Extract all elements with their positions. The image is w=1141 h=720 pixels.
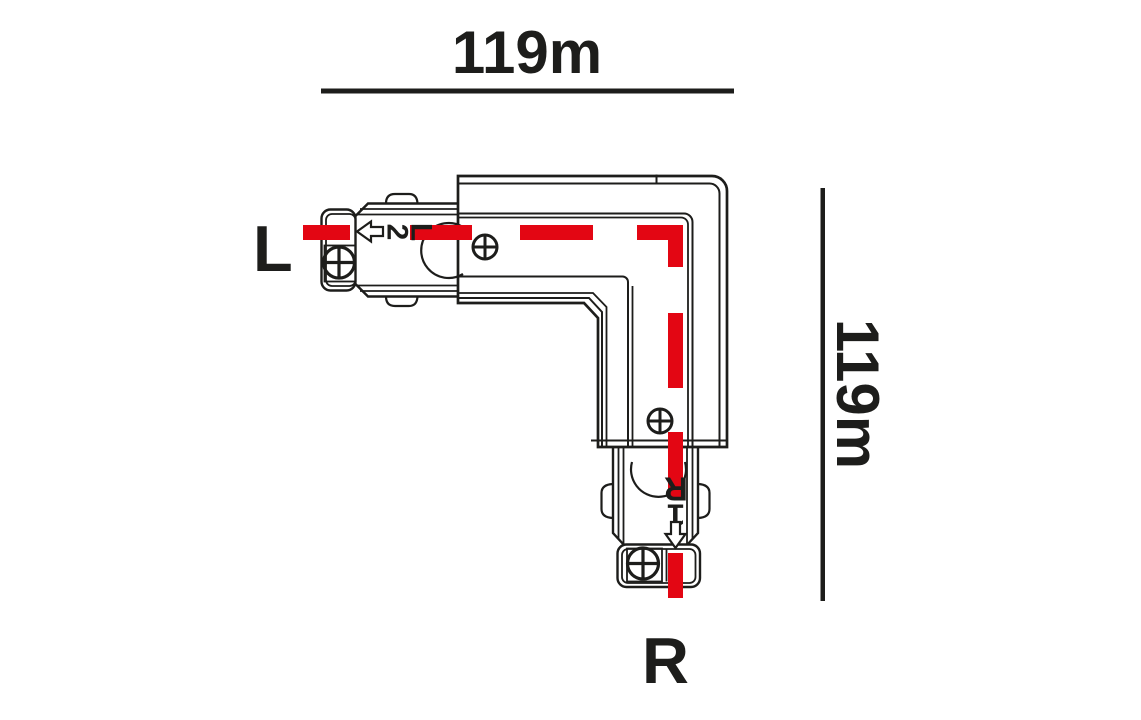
circuit-dash [520,225,593,240]
left-plug-top-tab [386,194,418,204]
circuit-dash [668,553,683,598]
track-connector-body [458,175,727,448]
dimension-right: 119m [821,188,892,601]
screw-icon-body-bottom [647,408,673,434]
screw-icon-bottom-cap [626,547,660,581]
left-plug-marking-letter: L [405,223,438,241]
dimension-top-value: 119m [452,19,602,86]
bottom-plug [602,447,710,587]
dimension-top: 119m [321,19,734,94]
dimension-top-line [321,89,734,94]
connector-diagram: 119m 119m L R [0,0,1141,720]
left-plug-bottom-tab [386,297,418,307]
left-plug [322,194,464,306]
dimension-right-value: 119m [824,319,891,469]
right-end-label: R [642,624,689,697]
technical-drawing-page: 119m 119m L R [0,0,1141,720]
screw-icon-body-left [472,234,498,260]
left-arrow-icon [357,222,383,242]
body-step-contour-1 [458,298,602,447]
circuit-dash [668,313,683,388]
bottom-plug-right-tab [698,484,710,518]
bottom-plug-left-tab [602,484,614,518]
body-step-contour-2 [458,293,607,447]
circuit-dash [303,225,350,240]
left-end-label: L [253,212,293,285]
screw-icon-left-cap [322,246,356,280]
